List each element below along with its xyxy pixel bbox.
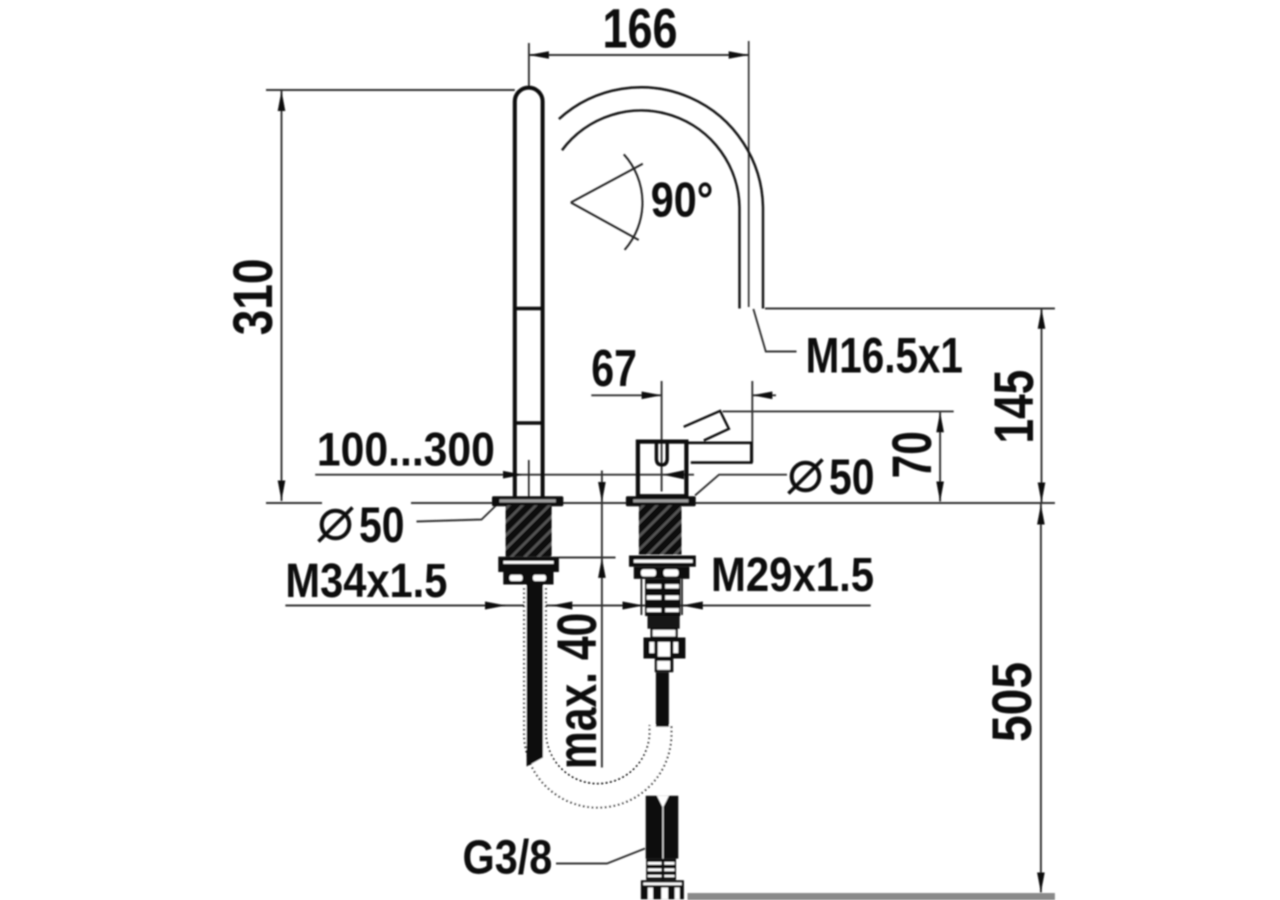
svg-text:M34x1.5: M34x1.5	[285, 555, 447, 608]
svg-text:145: 145	[982, 370, 1045, 444]
svg-text:100...300: 100...300	[317, 422, 495, 475]
svg-text:310: 310	[221, 259, 284, 336]
svg-text:M16.5x1: M16.5x1	[806, 327, 963, 383]
svg-text:max. 40: max. 40	[545, 613, 608, 769]
svg-text:M29x1.5: M29x1.5	[711, 549, 874, 602]
svg-text:50: 50	[359, 497, 405, 553]
svg-text:G3/8: G3/8	[463, 831, 553, 884]
svg-text:50: 50	[829, 449, 875, 505]
svg-text:166: 166	[603, 0, 678, 60]
svg-text:67: 67	[591, 340, 637, 398]
svg-text:70: 70	[880, 431, 943, 478]
svg-text:505: 505	[980, 662, 1043, 742]
svg-text:90°: 90°	[651, 174, 714, 228]
